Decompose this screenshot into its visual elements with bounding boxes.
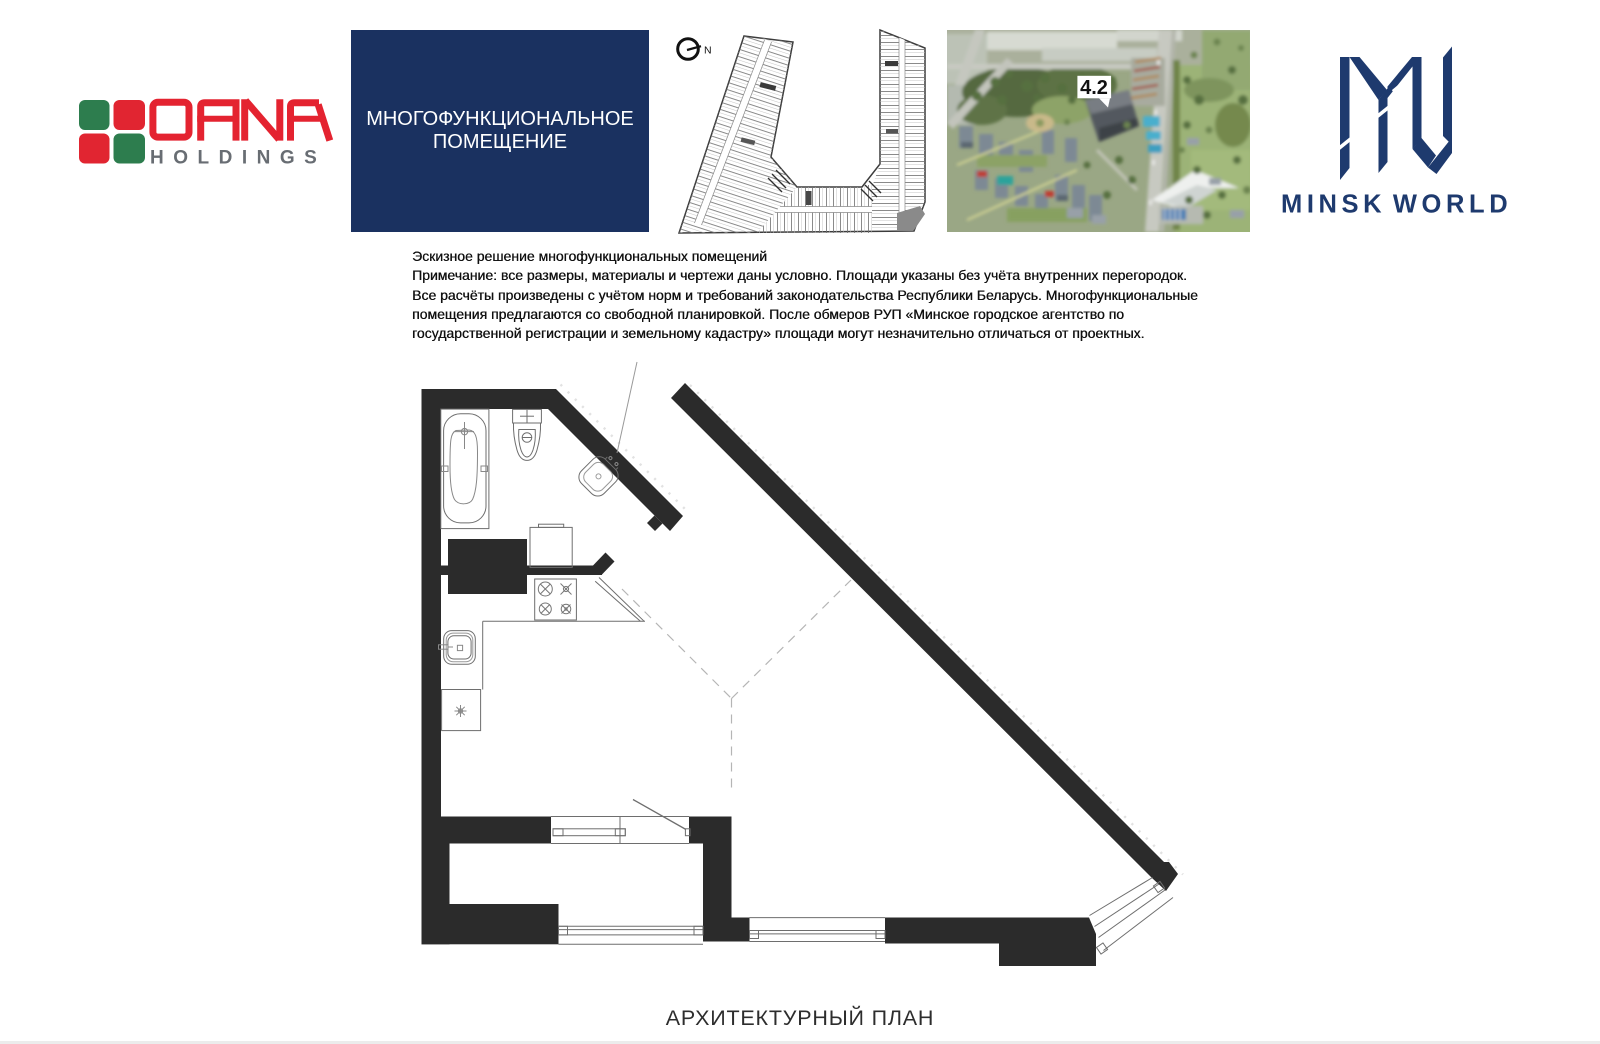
svg-text:HOLDINGS: HOLDINGS — [150, 148, 326, 169]
svg-text:MINSK WORLD: MINSK WORLD — [1281, 191, 1512, 219]
svg-text:N: N — [704, 45, 712, 57]
svg-text:4.2: 4.2 — [1080, 77, 1108, 99]
